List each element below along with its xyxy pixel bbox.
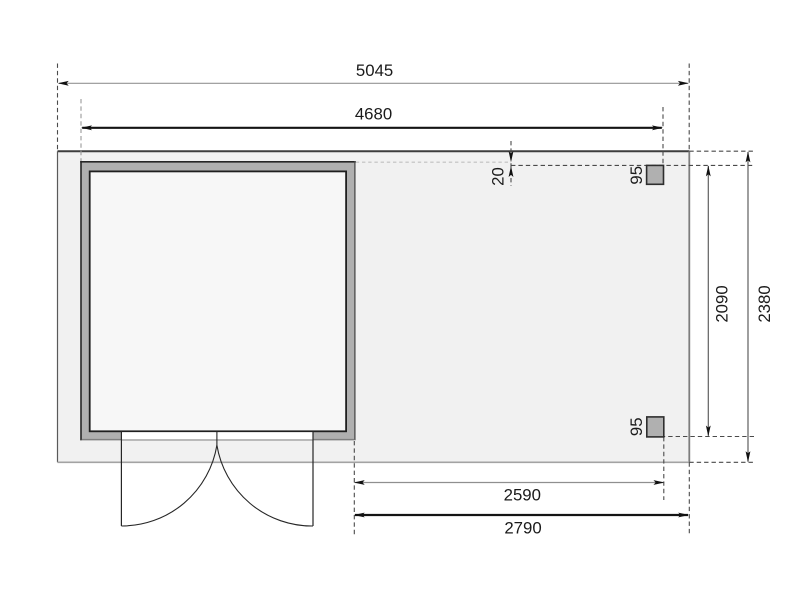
svg-text:95: 95 [627,166,646,185]
svg-text:95: 95 [627,417,646,436]
svg-text:2380: 2380 [755,285,774,322]
svg-text:2790: 2790 [504,518,541,537]
svg-text:4680: 4680 [355,105,392,124]
svg-text:2090: 2090 [713,285,732,322]
svg-text:5045: 5045 [356,61,393,80]
svg-text:2590: 2590 [504,486,541,505]
svg-text:20: 20 [489,167,508,186]
